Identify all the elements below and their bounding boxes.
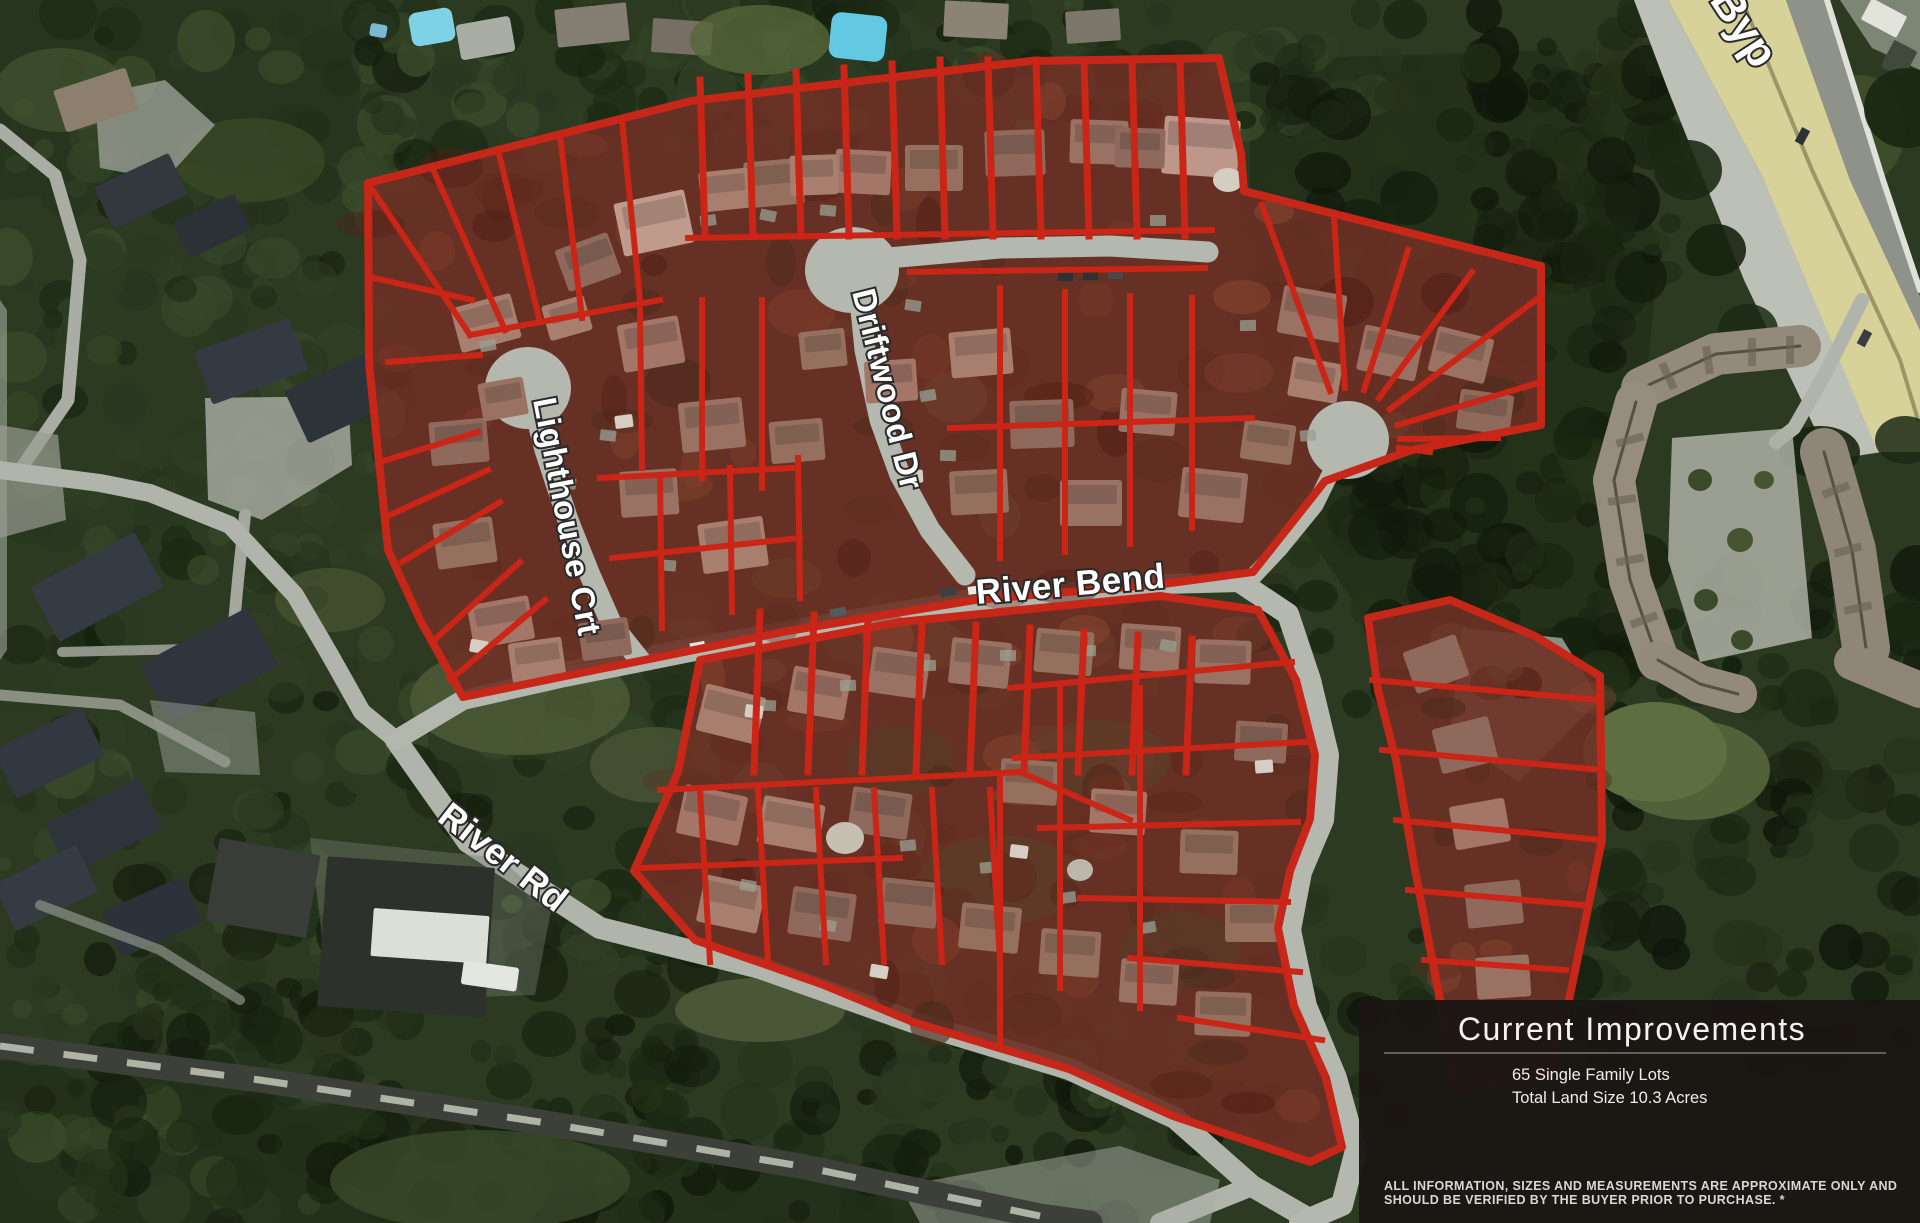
svg-text:SHOULD BE VERIFIED BY THE BUYE: SHOULD BE VERIFIED BY THE BUYER PRIOR TO… — [1384, 1193, 1785, 1207]
svg-text:Total Land Size 10.3 Acres: Total Land Size 10.3 Acres — [1512, 1089, 1707, 1107]
svg-text:Current Improvements: Current Improvements — [1458, 1011, 1806, 1047]
svg-text:ALL INFORMATION, SIZES AND MEA: ALL INFORMATION, SIZES AND MEASUREMENTS … — [1384, 1179, 1897, 1193]
svg-text:65 Single Family Lots: 65 Single Family Lots — [1512, 1066, 1670, 1084]
